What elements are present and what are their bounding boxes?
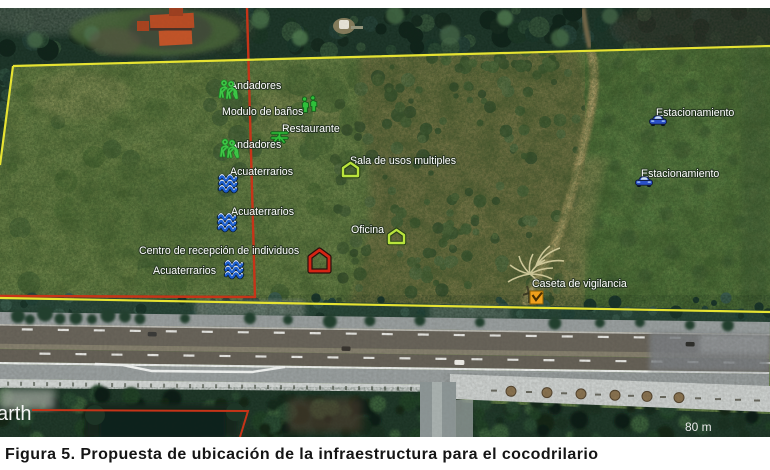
svg-text:Andadores: Andadores: [230, 80, 281, 92]
svg-text:Estacionamiento: Estacionamiento: [656, 107, 734, 119]
svg-text:Centro de recepción de indivi: Centro de recepción de individuos: [139, 245, 299, 257]
svg-text:Acuaterrarios: Acuaterrarios: [230, 166, 293, 178]
svg-text:arth: arth: [0, 403, 31, 425]
svg-text:Acuaterrarios: Acuaterrarios: [153, 265, 216, 277]
svg-text:Caseta de vigilancia: Caseta de vigilancia: [532, 278, 627, 290]
svg-text:Modulo de baños: Modulo de baños: [222, 106, 303, 118]
svg-text:80 m: 80 m: [685, 420, 712, 434]
svg-text:Restaurante: Restaurante: [282, 123, 340, 135]
svg-text:Sala de usos multiples: Sala de usos multiples: [350, 155, 456, 167]
svg-text:Estacionamiento: Estacionamiento: [641, 168, 719, 180]
svg-text:Acuaterrarios: Acuaterrarios: [231, 206, 294, 218]
svg-text:Oficina: Oficina: [351, 224, 384, 236]
